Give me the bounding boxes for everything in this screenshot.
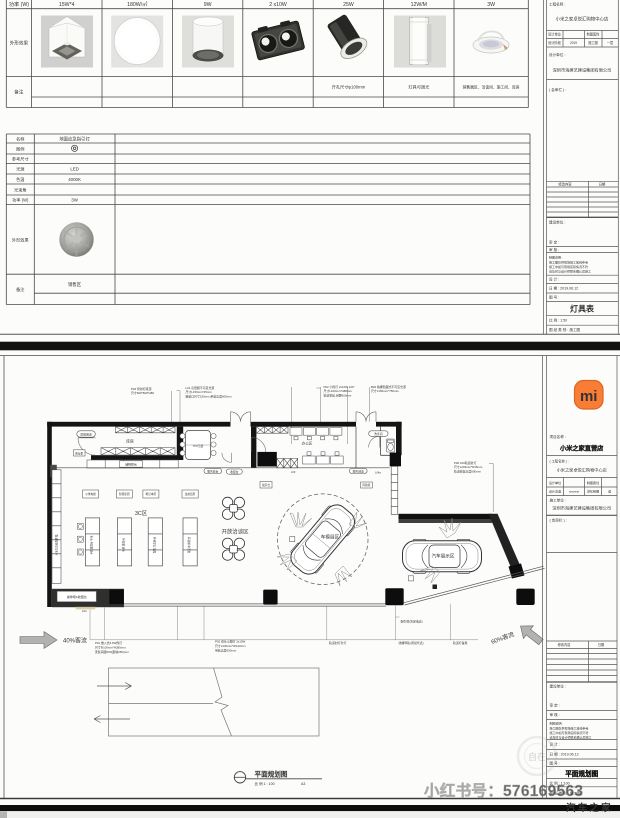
- svg-text:开孔尺寸φ100mm: 开孔尺寸φ100mm: [332, 84, 366, 91]
- svg-text:设计总监: 设计总监: [549, 489, 561, 494]
- svg-text:平面规划图: 平面规划图: [565, 769, 598, 778]
- svg-text:审 核 :: 审 核 :: [550, 712, 560, 717]
- svg-text:工程名称 :: 工程名称 :: [549, 2, 565, 7]
- svg-text:吊装高度600mm: 吊装高度600mm: [215, 647, 237, 652]
- svg-text:2019: 2019: [570, 41, 577, 45]
- svg-text:2 x10W: 2 x10W: [269, 2, 287, 8]
- svg-text:办公区: 办公区: [302, 441, 313, 446]
- svg-text:3W: 3W: [487, 2, 495, 8]
- svg-text:销售展区、洽谈间、施工间、库房: 销售展区、洽谈间、施工间、库房: [463, 85, 520, 90]
- svg-text:日期: 日期: [598, 642, 604, 647]
- svg-text:小米之家直营店: 小米之家直营店: [559, 445, 603, 453]
- svg-text:建设单位 :: 建设单位 :: [550, 684, 566, 689]
- svg-text:深圳市海建艺建设集团有限公司: 深圳市海建艺建设集团有限公司: [553, 67, 612, 74]
- svg-text:设计单位 :: 设计单位 :: [549, 52, 565, 57]
- svg-text:施工图仅供现场施工放线参考: 施工图仅供现场施工放线参考: [549, 260, 588, 265]
- svg-text:施工中如与现场实际情况不符: 施工中如与现场实际情况不符: [549, 264, 588, 269]
- svg-text:尺寸600*600*H80: 尺寸600*600*H80: [131, 390, 154, 395]
- svg-text:深圳市海建艺建设集团有限公司: 深圳市海建艺建设集团有限公司: [552, 505, 611, 512]
- svg-text:尺寸L150mm*750mm: 尺寸L150mm*750mm: [371, 388, 399, 393]
- svg-text:一层: 一层: [607, 40, 613, 45]
- svg-text:小米电视: 小米电视: [85, 492, 96, 496]
- svg-text:外形效果: 外形效果: [10, 39, 29, 46]
- svg-text:服务通道: 服务通道: [353, 469, 364, 473]
- svg-text:洗手间: 洗手间: [374, 432, 383, 436]
- svg-text:后勤通道: 后勤通道: [80, 431, 92, 436]
- svg-text:P02 双头斗胆灯 2x10W: P02 双头斗胆灯 2x10W: [215, 639, 245, 644]
- svg-text:图例: 图例: [16, 145, 24, 152]
- svg-text:线槽导轨(调试代表): 线槽导轨(调试代表): [399, 640, 424, 645]
- svg-text:备注: 备注: [16, 286, 25, 293]
- svg-text:施工图仅供现场施工放线参考: 施工图仅供现场施工放线参考: [550, 725, 589, 730]
- svg-text:审 核 :: 审 核 :: [549, 247, 559, 252]
- svg-text:储物柜台: 储物柜台: [125, 462, 137, 467]
- svg-text:销售区: 销售区: [68, 281, 82, 288]
- svg-text:自在: 自在: [528, 751, 546, 762]
- svg-text:日期: 日期: [599, 182, 606, 187]
- svg-text:3W: 3W: [71, 198, 78, 203]
- svg-text:轨道灯备用: 轨道灯备用: [453, 640, 468, 645]
- svg-text:色温: 色温: [16, 176, 25, 183]
- svg-text:笔记本区: 笔记本区: [146, 492, 157, 496]
- svg-text:180W/㎡: 180W/㎡: [127, 0, 148, 8]
- svg-text:光源: 光源: [16, 166, 25, 173]
- svg-text:设计单位: 设计单位: [548, 32, 562, 37]
- svg-text:( 会审栏 ) :: ( 会审栏 ) :: [550, 518, 567, 523]
- svg-text:日 期 : 2019.06.12: 日 期 : 2019.06.12: [549, 286, 578, 291]
- svg-text:A3: A3: [301, 782, 305, 786]
- svg-text:25W: 25W: [343, 2, 354, 8]
- svg-text:平面规划图: 平面规划图: [255, 770, 288, 779]
- svg-text:xiaowei: xiaowei: [569, 490, 580, 494]
- svg-text:指引牌(暂定电表): 指引牌(暂定电表): [401, 619, 423, 624]
- svg-text:施工单位 :: 施工单位 :: [550, 498, 566, 503]
- svg-text:寄存柜: 寄存柜: [75, 451, 83, 455]
- svg-text:灯具可调光: 灯具可调光: [408, 84, 429, 91]
- svg-text:mi: mi: [580, 388, 598, 405]
- svg-text:小红书号：576169563: 小红书号：576169563: [424, 781, 583, 800]
- svg-text:制图说明 :: 制图说明 :: [549, 255, 563, 260]
- svg-text:尺寸Φ100mm*H280mm: 尺寸Φ100mm*H280mm: [95, 644, 126, 649]
- svg-text:建设单位 :: 建设单位 :: [549, 220, 565, 225]
- svg-text:生态链区: 生态链区: [185, 492, 196, 496]
- svg-text:比 例 : 1:50: 比 例 : 1:50: [549, 318, 567, 323]
- svg-text:手机体验台 平米: 手机体验台 平米: [90, 535, 94, 554]
- svg-text:服务前台: 服务前台: [207, 469, 218, 473]
- svg-text:小米生态链配件墙: 小米生态链配件墙: [55, 534, 59, 555]
- svg-text:嵌装口尺寸150mm,吊装高度600mm: 嵌装口尺寸150mm,吊装高度600mm: [186, 393, 233, 398]
- svg-text:设计单位: 设计单位: [549, 480, 561, 485]
- svg-text:P01 嵌入式4.5W筒灯: P01 嵌入式4.5W筒灯: [95, 640, 122, 645]
- svg-text:展示台: 展示台: [262, 483, 270, 487]
- svg-text:9W: 9W: [204, 2, 212, 8]
- svg-text:小米之家卓悦汇购物中心店: 小米之家卓悦汇购物中心店: [557, 467, 607, 474]
- svg-text:功率 (W): 功率 (W): [12, 197, 29, 204]
- svg-text:笔记本 体验台: 笔记本 体验台: [187, 536, 191, 553]
- svg-text:地面应急指引灯: 地面应急指引灯: [59, 135, 90, 142]
- svg-text:小米之家卓悦汇购物中心店: 小米之家卓悦汇购物中心店: [556, 16, 609, 23]
- svg-text:施工图: 施工图: [588, 40, 598, 45]
- svg-text:制图说明 :: 制图说明 :: [550, 721, 564, 726]
- svg-text:咖啡吧&收银台: 咖啡吧&收银台: [67, 594, 87, 599]
- svg-text:收银台: 收银台: [230, 470, 239, 474]
- svg-text:参考尺寸: 参考尺寸: [12, 156, 29, 163]
- svg-text:12W/M: 12W/M: [411, 2, 427, 8]
- svg-text:审 定 :: 审 定 :: [549, 240, 559, 245]
- svg-text:4000K: 4000K: [68, 177, 81, 182]
- svg-text:请及时与设计师联系确认后施工: 请及时与设计师联系确认后施工: [549, 269, 591, 274]
- svg-text:LED: LED: [70, 167, 79, 172]
- svg-text:TPO洽谈: TPO洽谈: [193, 444, 204, 448]
- svg-text:手机 体验台: 手机 体验台: [122, 538, 126, 552]
- svg-text:施工中如与现场实际情况不符: 施工中如与现场实际情况不符: [550, 730, 589, 735]
- svg-text:项目名称 :: 项目名称 :: [550, 434, 566, 439]
- svg-text:( 工程名称 ) :: ( 工程名称 ) :: [550, 459, 569, 464]
- svg-text:日 期 : 2019.06.12: 日 期 : 2019.06.12: [550, 752, 579, 757]
- svg-text:谁: 谁: [608, 489, 611, 494]
- svg-text:灯具表: 灯具表: [570, 304, 594, 314]
- svg-text:制图属性: 制图属性: [587, 32, 601, 37]
- svg-text:智能家居: 智能家居: [119, 492, 130, 496]
- svg-text:尺寸L230mm*W120mm: 尺寸L230mm*W120mm: [215, 643, 246, 648]
- svg-text:修改内容: 修改内容: [558, 642, 572, 647]
- svg-text:功率 (W): 功率 (W): [9, 0, 29, 8]
- svg-text:图 纸 类 别 : 施工图: 图 纸 类 别 : 施工图: [549, 327, 581, 332]
- svg-text:比 例 1 : 100: 比 例 1 : 100: [255, 781, 275, 786]
- svg-text:L04: L04: [82, 609, 87, 613]
- svg-text:40%客流: 40%客流: [63, 637, 87, 645]
- svg-text:审 定 :: 审 定 :: [550, 703, 560, 708]
- svg-text:设 计 :: 设 计 :: [549, 277, 559, 282]
- svg-text:3C区: 3C区: [135, 510, 148, 517]
- svg-text:请及时与设计师联系确认后施工: 请及时与设计师联系确认后施工: [550, 734, 592, 739]
- svg-text:轨道安装高度600mm: 轨道安装高度600mm: [454, 468, 482, 473]
- svg-text:开放洽谈区: 开放洽谈区: [222, 528, 250, 536]
- svg-text:名称: 名称: [16, 135, 24, 142]
- svg-text:L04a: L04a: [375, 471, 381, 475]
- svg-text:制图属性: 制图属性: [587, 480, 599, 485]
- svg-text:汽车展示区: 汽车展示区: [432, 553, 455, 560]
- svg-text:修改内容: 修改内容: [558, 182, 572, 187]
- svg-text:备注: 备注: [14, 89, 24, 96]
- svg-text:汽车之家: 汽车之家: [566, 802, 613, 814]
- svg-text:设计阶段: 设计阶段: [548, 40, 562, 45]
- svg-text:15W*4: 15W*4: [59, 2, 75, 8]
- svg-text:风幕机: 风幕机: [362, 483, 370, 487]
- svg-text:外形效果: 外形效果: [12, 236, 30, 243]
- svg-text:深化制图: 深化制图: [587, 489, 599, 494]
- svg-text:轨道射灯条灯: 轨道射灯条灯: [329, 640, 346, 645]
- svg-text:安装间距600(距墙250)mm: 安装间距600(距墙250)mm: [95, 649, 129, 654]
- svg-text:( 会审栏 ) :: ( 会审栏 ) :: [549, 87, 566, 92]
- svg-text:图 号 :: 图 号 :: [549, 295, 559, 300]
- svg-text:智能 生态链台: 智能 生态链台: [152, 536, 156, 553]
- svg-text:库房: 库房: [126, 439, 134, 444]
- svg-text:车模展区: 车模展区: [321, 534, 340, 541]
- svg-text:光束角: 光束角: [14, 186, 27, 193]
- svg-text:L03: L03: [291, 470, 296, 474]
- svg-text:轨道安装,间距600mm: 轨道安装,间距600mm: [324, 392, 352, 397]
